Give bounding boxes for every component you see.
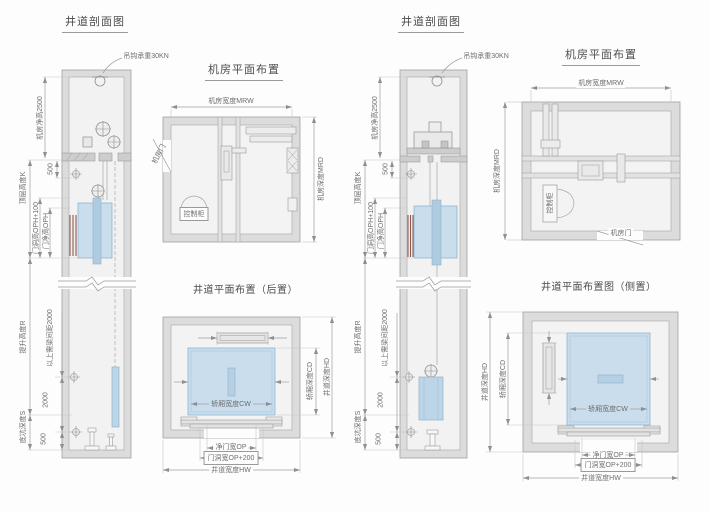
- door-opening-width-dim: 门洞宽OP+200: [581, 458, 636, 472]
- dim-2000: 2000: [43, 392, 50, 408]
- right-shaft-section-drawing: [396, 70, 471, 458]
- machine-room-height-dim: 机房净高2500: [370, 96, 380, 140]
- door-clear-height-dim: 门净高OPH: [376, 213, 386, 249]
- machine-room-door-label: 机房门: [609, 228, 634, 238]
- counterweight-section: [112, 367, 119, 427]
- shaft-depth-dim: 井道深度HD: [322, 358, 332, 396]
- right-section-title: 井道剖面图: [398, 13, 464, 33]
- car-width-dim: 轿厢宽度CW: [586, 404, 630, 414]
- top-floor-height-dim: 顶层高度K: [353, 172, 363, 205]
- door-clear-height-dim: 门净高OPH: [41, 213, 51, 249]
- counterweight-plan: [543, 343, 555, 393]
- door-opening-height-dim: 门洞高OPH+100: [31, 202, 41, 254]
- elevator-layout-diagram: 井道剖面图 井道剖面图 机房平面布置 机房平面布置 井道平面布置（后置） 井道平…: [0, 0, 710, 511]
- left-machine-room-plan: [153, 117, 300, 242]
- hook-capacity-label: 吊钩承重30KN: [463, 51, 509, 61]
- machine-room-width-dim: 机房宽度MRW: [206, 96, 255, 106]
- machine-room-depth-dim: 机房深度MRD: [492, 149, 502, 193]
- right-machine-room-plan: [522, 102, 680, 245]
- machine-room-height-dim: 机房净高2500: [35, 96, 45, 140]
- left-shaft-plan-title: 井道平面布置（后置）: [193, 281, 298, 296]
- hoisting-hook: [432, 76, 442, 86]
- counterweight-section: [419, 377, 443, 420]
- dim-500-bottom: 500: [41, 433, 48, 445]
- dim-500-top: 500: [48, 163, 55, 175]
- control-cabinet-label: 控制柜: [180, 207, 209, 221]
- shaft-width-dim: 井道宽度HW: [579, 473, 623, 483]
- door-opening-height-dim: 门洞高OPH+100: [366, 202, 376, 254]
- dim-500-bottom: 500: [376, 433, 383, 445]
- machine-room-depth-dim: 机房深度MRD: [316, 157, 326, 201]
- pit-depth-dim: 底坑深度S: [353, 411, 363, 444]
- left-machine-room-title: 机房平面布置: [205, 61, 283, 81]
- left-section-title: 井道剖面图: [62, 13, 128, 33]
- right-shaft-plan-title: 井道平面布置图（侧置）: [541, 278, 657, 293]
- dim-500-top: 500: [383, 163, 390, 175]
- dim-2000: 2000: [378, 392, 385, 408]
- left-shaft-plan-drawing: [163, 317, 300, 438]
- hook-capacity-label: 吊钩承重30KN: [123, 51, 169, 61]
- control-cabinet-label: 控制柜: [545, 193, 555, 214]
- travel-height-dim: 提升高度R: [353, 320, 363, 353]
- car-depth-dim: 轿厢深度CD: [498, 360, 508, 398]
- counterweight-plan: [217, 333, 268, 343]
- shaft-depth-dim: 井道深度HD: [480, 363, 490, 401]
- beam-spacing-note: 以上需梁间距2000: [45, 309, 55, 367]
- door-opening-width-dim: 门洞宽OP+200: [204, 451, 259, 465]
- left-shaft-section-drawing: [58, 70, 136, 458]
- travel-height-dim: 提升高度R: [18, 320, 28, 353]
- pit-depth-dim: 底坑深度S: [18, 411, 28, 444]
- beam-spacing-note: 以上需梁间距2000: [380, 309, 390, 367]
- shaft-width-dim: 井道宽度HW: [209, 465, 253, 475]
- machine-room-width-dim: 机房宽度MRW: [576, 78, 625, 88]
- car-depth-dim: 轿厢深度CD: [305, 362, 315, 400]
- top-floor-height-dim: 顶层高度K: [18, 172, 28, 205]
- right-machine-room-title: 机房平面布置: [562, 46, 640, 66]
- car-width-dim: 轿厢宽度CW: [209, 399, 253, 409]
- hoisting-hook: [95, 76, 105, 86]
